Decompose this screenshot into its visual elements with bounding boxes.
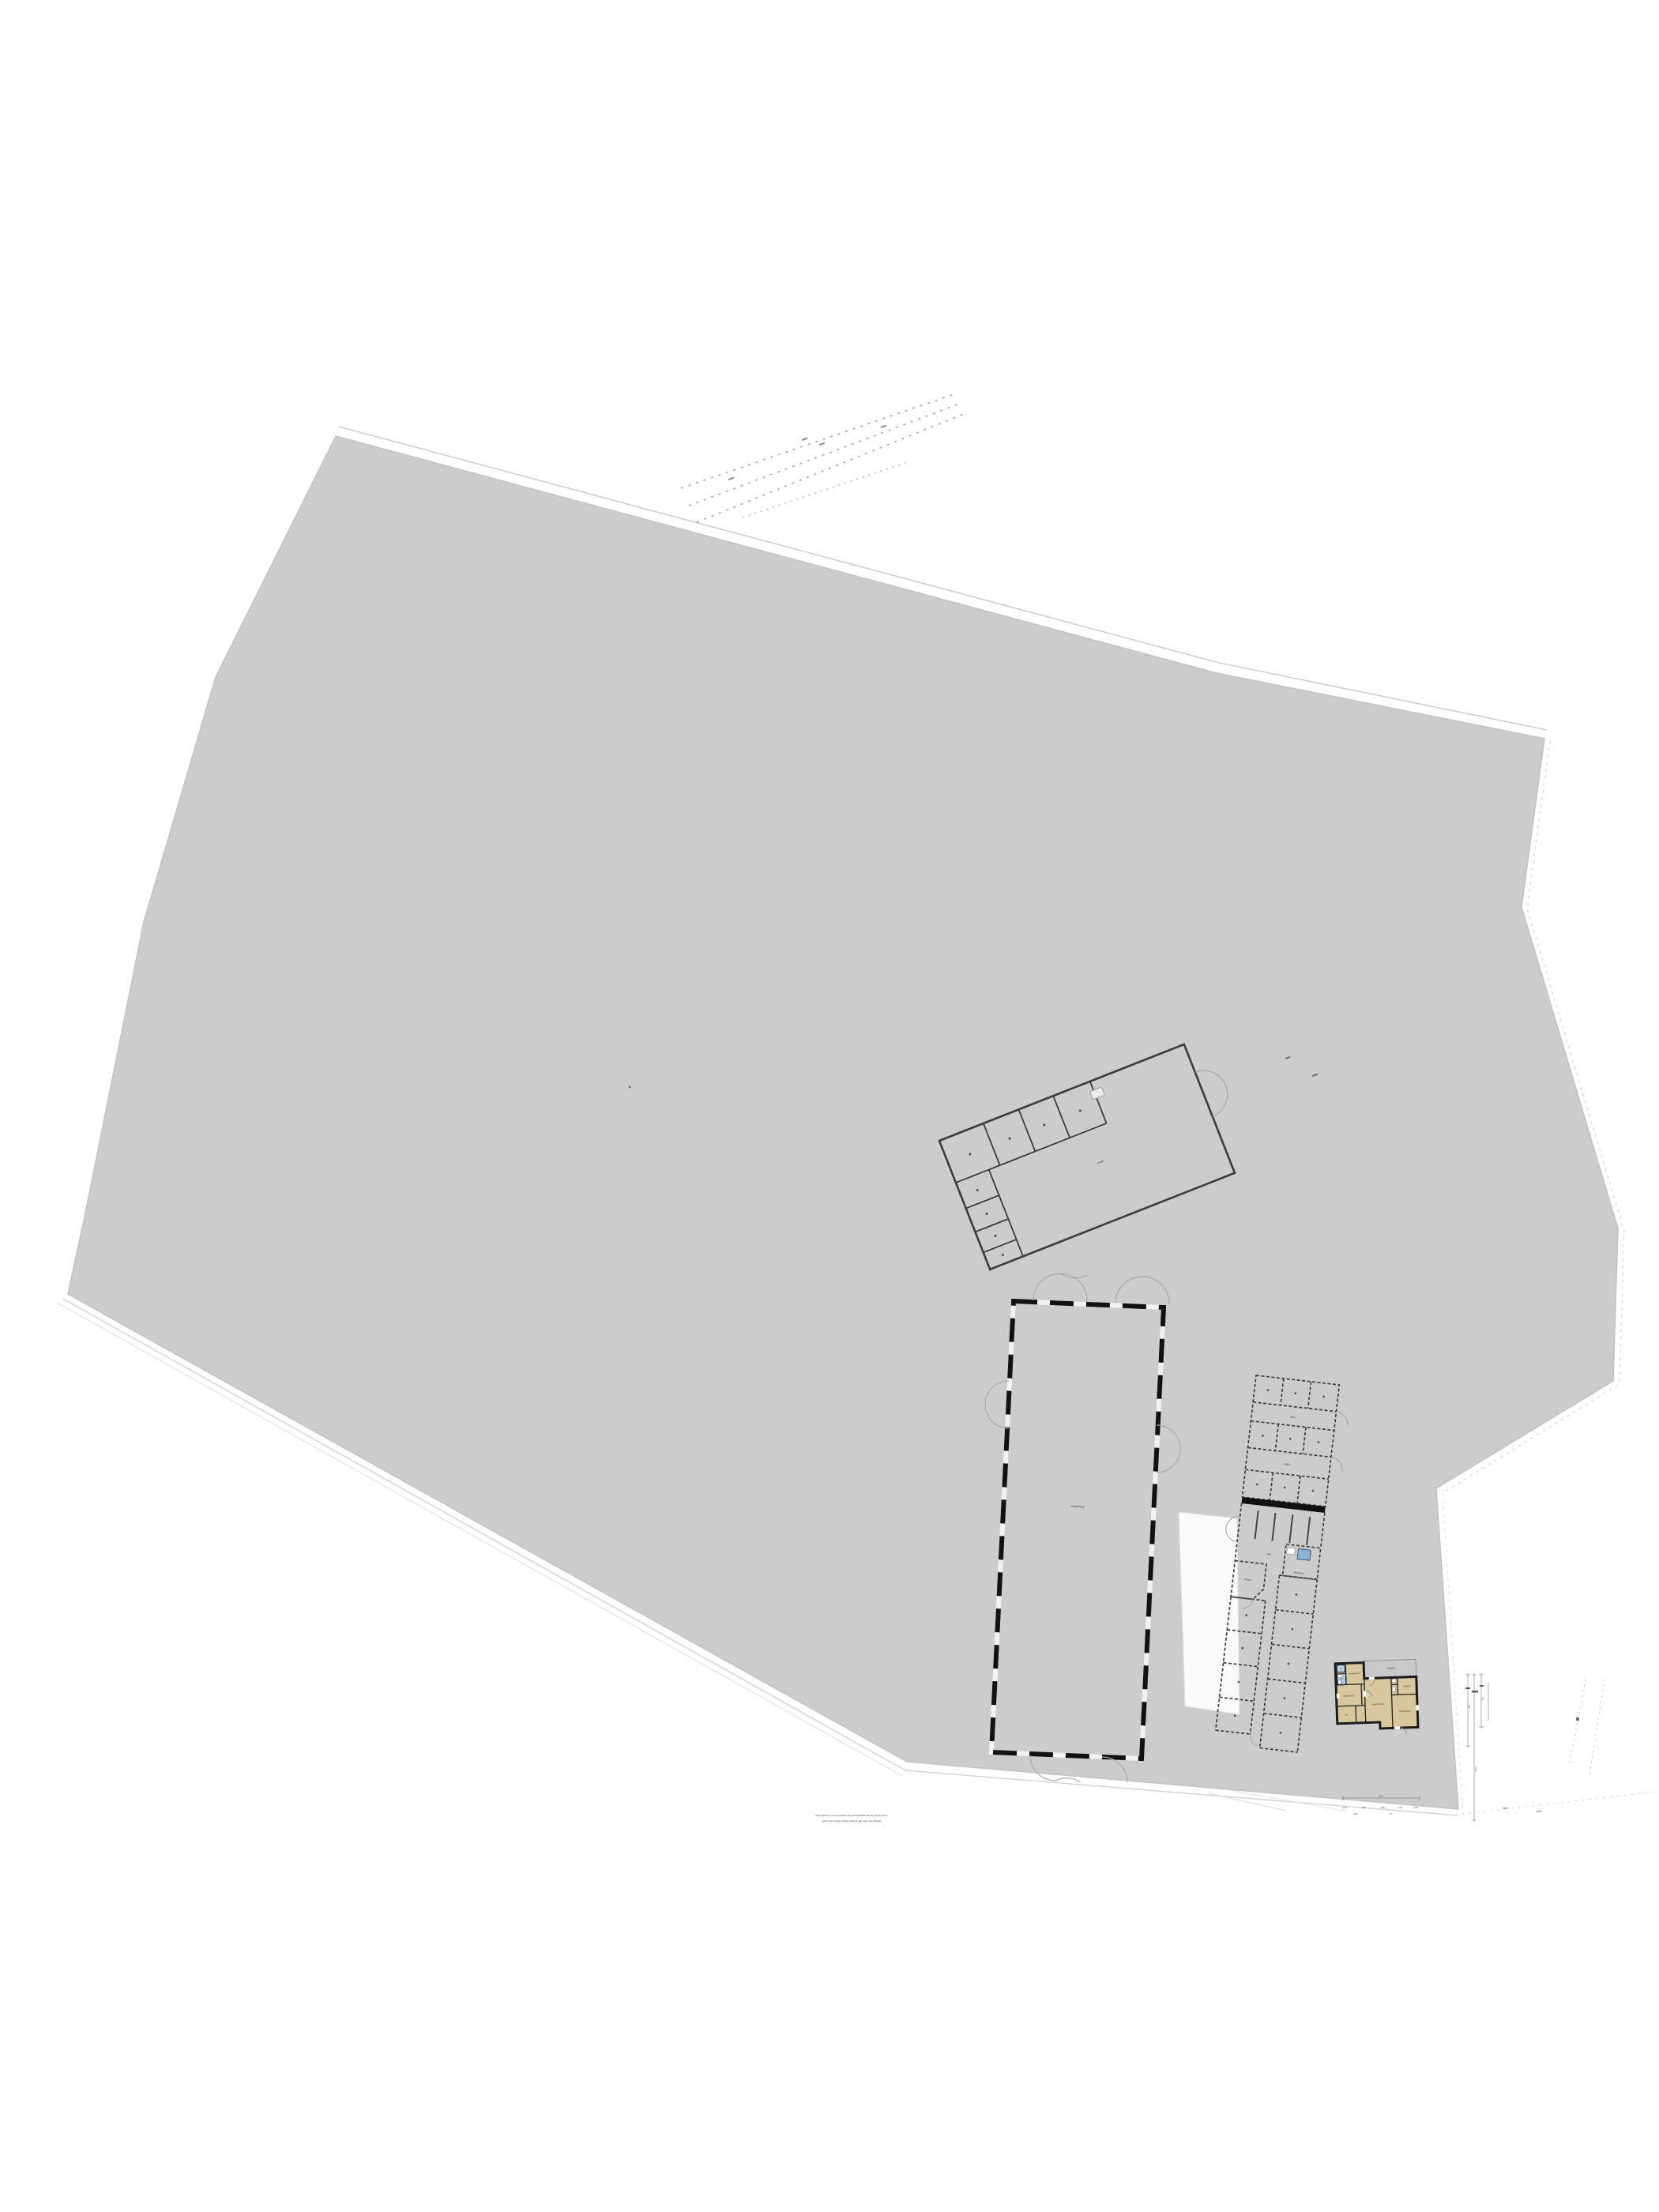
disclaimer-line1: Deze tekening is met de grootste zorg sa… — [816, 1814, 888, 1817]
vdim-a: 8.4 — [1468, 1704, 1471, 1708]
wc-fixture — [1392, 1679, 1396, 1682]
scalebar-tick: 7.5 — [1389, 1812, 1392, 1815]
road-lines — [681, 395, 964, 522]
scalebar-tick: 2.10 — [1342, 1806, 1347, 1809]
parcel — [58, 427, 1656, 1815]
house-bed-left-label: slaapkamer — [1343, 1694, 1355, 1698]
house-bed-top-label: slaapkamer — [1349, 1672, 1360, 1676]
scalebar-tick: 2.40 — [1398, 1806, 1402, 1809]
disclaimer: Deze tekening is met de grootste zorg sa… — [816, 1814, 888, 1823]
yard-white-patch — [1179, 1512, 1240, 1714]
scalebar-tick: 10.2 — [1353, 1812, 1358, 1815]
stable-corridor1-label: gang — [1290, 1415, 1296, 1419]
house-kitchen-label: keuken — [1404, 1684, 1412, 1687]
scalebar-tick: 4.95 — [1361, 1806, 1366, 1809]
road-line — [689, 404, 957, 506]
vdim-marks — [1465, 1685, 1484, 1692]
stable-wet-cell — [1297, 1548, 1311, 1560]
stable-corridor2-label: gang — [1285, 1462, 1290, 1466]
vdim-c: 5.2 — [1481, 1696, 1484, 1700]
scalebar-total: 14.8 — [1379, 1795, 1383, 1798]
boundary-dashed-diagonals — [1569, 1680, 1604, 1776]
stable-stalls-label: stal — [1267, 1552, 1271, 1556]
dimension-labels-vertical: 8.4 12.6 5.2 — [1465, 1685, 1484, 1772]
house-bath-label: badkamer — [1341, 1676, 1342, 1683]
boundary-line-lobe — [1443, 1493, 1656, 1814]
road-line — [681, 395, 952, 488]
faint-diagonal — [1209, 1793, 1286, 1811]
road-marks — [728, 425, 886, 480]
site-plan-canvas: loods veldschuur — [0, 0, 1659, 2212]
parcel-fill — [68, 436, 1618, 1809]
house-hall-label: hal — [1345, 1713, 1348, 1716]
wc-fixture — [1392, 1687, 1395, 1691]
house-closet-label: kast — [1339, 1668, 1342, 1670]
road-line — [697, 414, 964, 522]
road-line — [743, 461, 910, 517]
dimension-lines-vertical — [1465, 1673, 1488, 1822]
vdim-b: 12.6 — [1474, 1767, 1477, 1772]
house-living-label: woonkamer — [1373, 1702, 1385, 1706]
house-garage-label: berging — [1386, 1666, 1394, 1669]
right-annotation-marks — [1503, 1808, 1542, 1812]
house-bed-right-label: slaapkamer — [1399, 1710, 1411, 1714]
site-plan-drawing: loods veldschuur — [0, 0, 1659, 2212]
disclaimer-line2: echter geen rechten worden ontleend, all… — [822, 1819, 882, 1823]
scalebar-tick: 1.85 — [1413, 1806, 1418, 1809]
scalebar-tick: 3.20 — [1380, 1806, 1385, 1809]
stable-fixture — [1287, 1548, 1296, 1555]
